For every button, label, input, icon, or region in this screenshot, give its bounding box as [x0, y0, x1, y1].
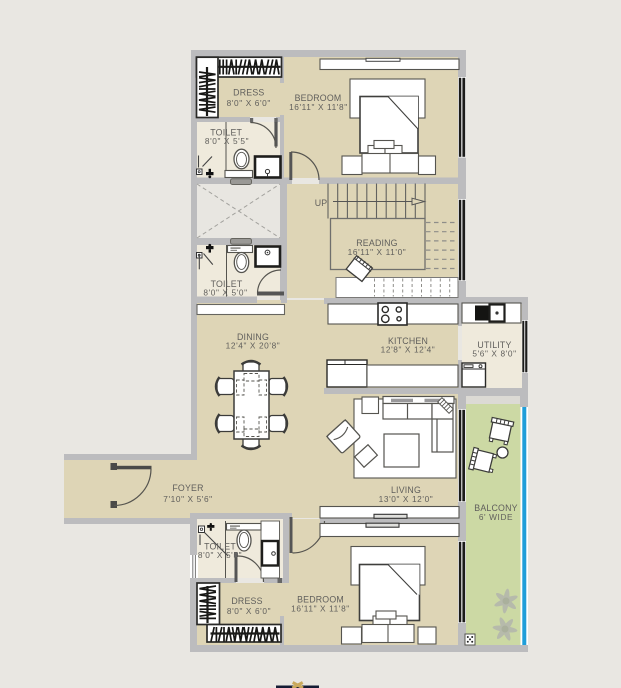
- svg-text:16'11" X 11'8": 16'11" X 11'8": [289, 102, 348, 112]
- svg-text:UP: UP: [315, 198, 328, 208]
- svg-text:DRESS: DRESS: [231, 596, 262, 606]
- svg-text:16'11" X 11'8": 16'11" X 11'8": [291, 603, 350, 613]
- svg-text:8'0" X 5'5": 8'0" X 5'5": [205, 136, 249, 146]
- svg-text:5'6" X 8'0": 5'6" X 8'0": [472, 349, 516, 359]
- svg-text:13'0" X 12'0": 13'0" X 12'0": [379, 494, 434, 504]
- svg-text:7'10" X 5'6": 7'10" X 5'6": [163, 494, 212, 504]
- svg-text:8'0" X 6'0": 8'0" X 6'0": [227, 606, 271, 616]
- svg-text:12'4" X 20'8": 12'4" X 20'8": [226, 340, 281, 350]
- svg-text:DRESS: DRESS: [233, 88, 264, 98]
- svg-text:12'8" X 12'4": 12'8" X 12'4": [381, 344, 436, 354]
- svg-text:6' WIDE: 6' WIDE: [479, 512, 513, 522]
- svg-text:8'0" X 5'0": 8'0" X 5'0": [203, 288, 247, 298]
- svg-text:8'0" X 5'5": 8'0" X 5'5": [198, 550, 242, 560]
- svg-text:FOYER: FOYER: [172, 483, 203, 493]
- svg-text:16'11" X 11'0": 16'11" X 11'0": [348, 247, 407, 257]
- svg-text:8'0" X 6'0": 8'0" X 6'0": [227, 98, 271, 108]
